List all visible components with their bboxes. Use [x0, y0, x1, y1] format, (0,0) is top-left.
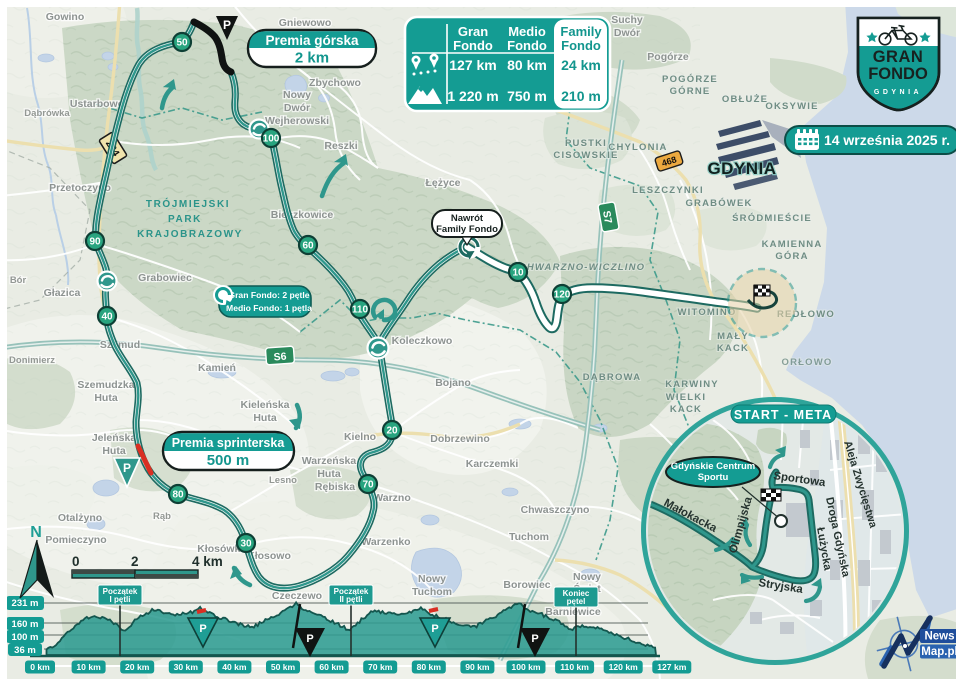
- svg-text:60 km: 60 km: [319, 662, 344, 672]
- svg-text:OBŁUŻE: OBŁUŻE: [722, 94, 768, 105]
- svg-text:160 m: 160 m: [12, 619, 39, 630]
- svg-text:TRÓJMIEJSKI: TRÓJMIEJSKI: [146, 197, 230, 210]
- svg-text:750 m: 750 m: [507, 88, 547, 104]
- svg-text:CHWARZNO-WICZLINO: CHWARZNO-WICZLINO: [519, 262, 645, 273]
- svg-text:30: 30: [240, 539, 252, 550]
- svg-text:GÓRNE: GÓRNE: [670, 85, 711, 97]
- svg-text:110 km: 110 km: [560, 662, 589, 672]
- svg-text:KAMIENNA: KAMIENNA: [762, 239, 823, 250]
- svg-text:Gran Fondo: 2 pętle: Gran Fondo: 2 pętle: [228, 290, 309, 300]
- svg-text:Tuchom: Tuchom: [509, 531, 549, 543]
- svg-text:Kamień: Kamień: [198, 362, 236, 374]
- svg-text:GRABÓWEK: GRABÓWEK: [685, 197, 752, 209]
- svg-text:2: 2: [131, 554, 139, 569]
- svg-text:Nowy: Nowy: [283, 89, 311, 101]
- svg-text:Huta: Huta: [94, 392, 117, 404]
- svg-text:Pogórze: Pogórze: [647, 51, 689, 63]
- svg-text:GDYNIA: GDYNIA: [707, 159, 776, 178]
- svg-text:80: 80: [172, 490, 184, 501]
- svg-text:Borowiec: Borowiec: [503, 579, 550, 591]
- svg-text:Gran: Gran: [458, 24, 488, 39]
- svg-text:Karczemki: Karczemki: [466, 458, 519, 470]
- svg-text:WIELKI: WIELKI: [666, 392, 706, 403]
- svg-text:Dwór: Dwór: [284, 102, 310, 114]
- svg-text:127 km: 127 km: [449, 57, 496, 73]
- svg-text:MAŁY: MAŁY: [717, 331, 749, 342]
- svg-text:24 km: 24 km: [561, 57, 601, 73]
- svg-text:ORŁOWO: ORŁOWO: [782, 357, 833, 368]
- svg-text:Nowy: Nowy: [418, 573, 446, 585]
- svg-text:News: News: [924, 631, 954, 643]
- svg-text:Pomieczyno: Pomieczyno: [45, 534, 106, 546]
- svg-text:80 km: 80 km: [417, 662, 442, 672]
- svg-text:Fondo: Fondo: [507, 38, 547, 53]
- svg-text:Rąb: Rąb: [153, 511, 171, 522]
- svg-text:Huta: Huta: [317, 468, 340, 480]
- svg-text:36 m: 36 m: [14, 645, 36, 656]
- svg-text:Donimierz: Donimierz: [9, 355, 55, 366]
- svg-text:80 km: 80 km: [507, 57, 547, 73]
- svg-text:Huta: Huta: [253, 412, 276, 424]
- svg-text:P: P: [199, 623, 206, 635]
- svg-text:50: 50: [176, 38, 188, 49]
- svg-text:Family: Family: [560, 24, 602, 39]
- svg-text:PARK: PARK: [168, 214, 202, 225]
- svg-text:Warzno: Warzno: [373, 492, 411, 504]
- svg-text:OKSYWIE: OKSYWIE: [765, 101, 818, 112]
- svg-text:Barniewice: Barniewice: [545, 606, 601, 618]
- svg-text:500 m: 500 m: [207, 452, 250, 469]
- svg-text:100: 100: [263, 134, 280, 145]
- svg-text:Jeleńska: Jeleńska: [92, 432, 137, 444]
- svg-text:Premia górska: Premia górska: [265, 33, 359, 48]
- svg-text:90: 90: [89, 237, 101, 248]
- svg-text:Suchy: Suchy: [611, 14, 643, 26]
- svg-text:POGÓRZE: POGÓRZE: [662, 73, 718, 85]
- svg-text:127 km: 127 km: [657, 662, 687, 672]
- svg-text:2 km: 2 km: [295, 50, 329, 67]
- svg-text:Warzeńska: Warzeńska: [302, 455, 357, 467]
- svg-text:Łężyce: Łężyce: [425, 177, 460, 189]
- svg-text:N: N: [30, 524, 42, 541]
- svg-text:GDYNIA: GDYNIA: [874, 89, 922, 96]
- svg-text:KRAJOBRAZOWY: KRAJOBRAZOWY: [137, 229, 243, 240]
- svg-text:Ustarbowo: Ustarbowo: [70, 98, 124, 110]
- svg-text:Bór: Bór: [10, 275, 27, 286]
- svg-text:10: 10: [512, 268, 524, 279]
- svg-text:110: 110: [352, 305, 369, 316]
- svg-text:Gowino: Gowino: [46, 11, 85, 23]
- svg-text:10 km: 10 km: [76, 662, 101, 672]
- svg-text:I pętli: I pętli: [110, 595, 131, 604]
- svg-text:Czeczewo: Czeczewo: [272, 590, 322, 602]
- svg-text:KACK: KACK: [717, 343, 749, 354]
- svg-text:Głazica: Głazica: [44, 287, 81, 299]
- svg-text:II pętli: II pętli: [339, 595, 362, 604]
- svg-text:Wejherowski: Wejherowski: [265, 115, 329, 127]
- svg-text:20 km: 20 km: [125, 662, 150, 672]
- svg-text:20: 20: [386, 426, 398, 437]
- svg-text:120 km: 120 km: [609, 662, 639, 672]
- svg-text:LESZCZYNKI: LESZCZYNKI: [632, 185, 704, 196]
- svg-text:FONDO: FONDO: [868, 65, 928, 83]
- svg-text:40 km: 40 km: [222, 662, 247, 672]
- svg-text:Chwaszczyno: Chwaszczyno: [521, 504, 590, 516]
- svg-text:Dobrzewino: Dobrzewino: [430, 433, 490, 445]
- svg-text:P: P: [306, 633, 313, 645]
- svg-text:14 września 2025 r.: 14 września 2025 r.: [824, 132, 950, 148]
- svg-text:Lesno: Lesno: [269, 475, 297, 486]
- svg-text:1 220 m: 1 220 m: [447, 88, 498, 104]
- svg-text:Sportu: Sportu: [698, 472, 729, 483]
- svg-text:100 m: 100 m: [12, 632, 39, 643]
- svg-text:Dąbrówka: Dąbrówka: [24, 108, 70, 119]
- svg-text:Rębiska: Rębiska: [315, 481, 355, 493]
- svg-text:Medio: Medio: [508, 24, 546, 39]
- svg-text:pętel: pętel: [567, 597, 586, 606]
- svg-text:Warzenko: Warzenko: [361, 536, 410, 548]
- svg-text:P: P: [431, 623, 438, 635]
- svg-text:Kieleńska: Kieleńska: [240, 399, 289, 411]
- svg-text:Fondo: Fondo: [453, 38, 493, 53]
- svg-text:0: 0: [72, 554, 80, 569]
- svg-text:70 km: 70 km: [368, 662, 393, 672]
- svg-text:120: 120: [554, 290, 571, 301]
- svg-text:Szemudzka: Szemudzka: [77, 379, 134, 391]
- svg-text:Nowy: Nowy: [573, 571, 601, 583]
- svg-text:Medio Fondo: 1 pętla: Medio Fondo: 1 pętla: [226, 303, 312, 313]
- svg-text:70: 70: [362, 480, 374, 491]
- svg-text:90 km: 90 km: [465, 662, 490, 672]
- svg-text:40: 40: [101, 312, 113, 323]
- svg-text:Map.pl: Map.pl: [921, 646, 957, 658]
- svg-text:Bojano: Bojano: [435, 377, 471, 389]
- svg-text:P: P: [123, 461, 131, 475]
- svg-text:Gniewowo: Gniewowo: [279, 17, 332, 29]
- svg-text:231 m: 231 m: [12, 598, 39, 609]
- svg-text:30 km: 30 km: [174, 662, 199, 672]
- svg-text:S6: S6: [273, 351, 287, 364]
- svg-text:4 km: 4 km: [192, 554, 223, 569]
- svg-text:Koleczkowo: Koleczkowo: [392, 335, 453, 347]
- svg-text:ŚRÓDMIEŚCIE: ŚRÓDMIEŚCIE: [732, 212, 812, 224]
- svg-text:Nawrót: Nawrót: [451, 213, 484, 224]
- svg-text:Otalżyno: Otalżyno: [58, 512, 102, 524]
- svg-text:100 km: 100 km: [511, 662, 541, 672]
- svg-text:Reszki: Reszki: [324, 140, 357, 152]
- svg-text:Huta: Huta: [102, 445, 125, 457]
- svg-text:GÓRA: GÓRA: [775, 250, 808, 262]
- svg-text:PUSTKI: PUSTKI: [565, 138, 607, 149]
- svg-text:P: P: [223, 18, 231, 32]
- svg-text:Family Fondo: Family Fondo: [436, 224, 498, 235]
- svg-text:0 km: 0 km: [30, 662, 50, 672]
- svg-text:Fondo: Fondo: [561, 38, 601, 53]
- svg-text:Zbychowo: Zbychowo: [309, 77, 361, 89]
- svg-text:60: 60: [302, 241, 314, 252]
- svg-text:Kielno: Kielno: [344, 431, 376, 443]
- svg-text:Grabowiec: Grabowiec: [138, 272, 192, 284]
- svg-text:Premia sprinterska: Premia sprinterska: [172, 436, 286, 450]
- svg-text:P: P: [531, 633, 538, 645]
- svg-text:S7: S7: [600, 210, 614, 225]
- svg-text:CHYLONIA: CHYLONIA: [608, 142, 667, 153]
- svg-text:Dwór: Dwór: [614, 27, 640, 39]
- svg-text:210 m: 210 m: [561, 88, 601, 104]
- svg-text:KARWINY: KARWINY: [665, 379, 719, 390]
- svg-text:50 km: 50 km: [271, 662, 296, 672]
- svg-text:Gdyńskie Centrum: Gdyńskie Centrum: [671, 461, 755, 472]
- svg-text:GRAN: GRAN: [873, 48, 924, 66]
- svg-text:START - META: START - META: [734, 408, 832, 422]
- svg-text:DĄBROWA: DĄBROWA: [583, 372, 642, 383]
- svg-text:Tuchom: Tuchom: [412, 586, 452, 598]
- svg-text:Bieszkowice: Bieszkowice: [271, 209, 334, 221]
- svg-text:KACK: KACK: [670, 404, 702, 415]
